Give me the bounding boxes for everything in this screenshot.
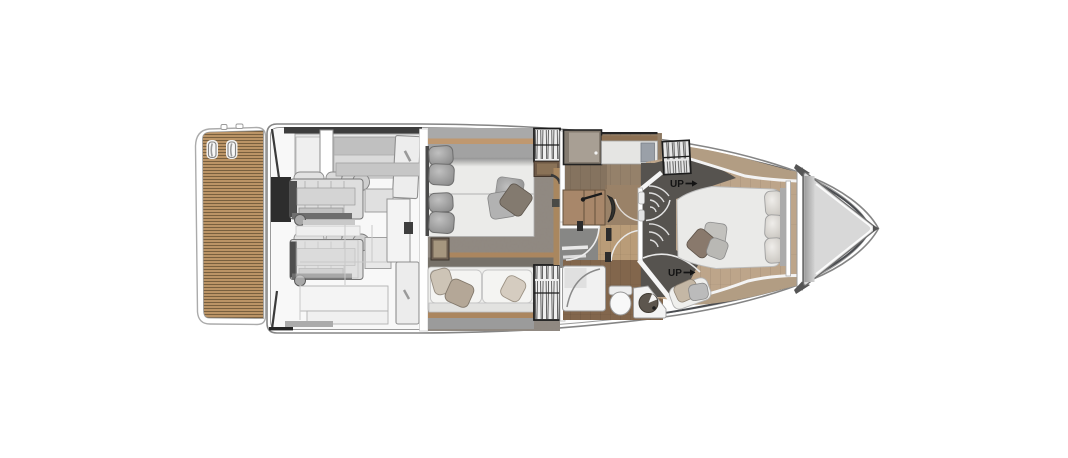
svg-text:UP: UP [670, 179, 684, 190]
svg-text:UP: UP [668, 268, 682, 279]
